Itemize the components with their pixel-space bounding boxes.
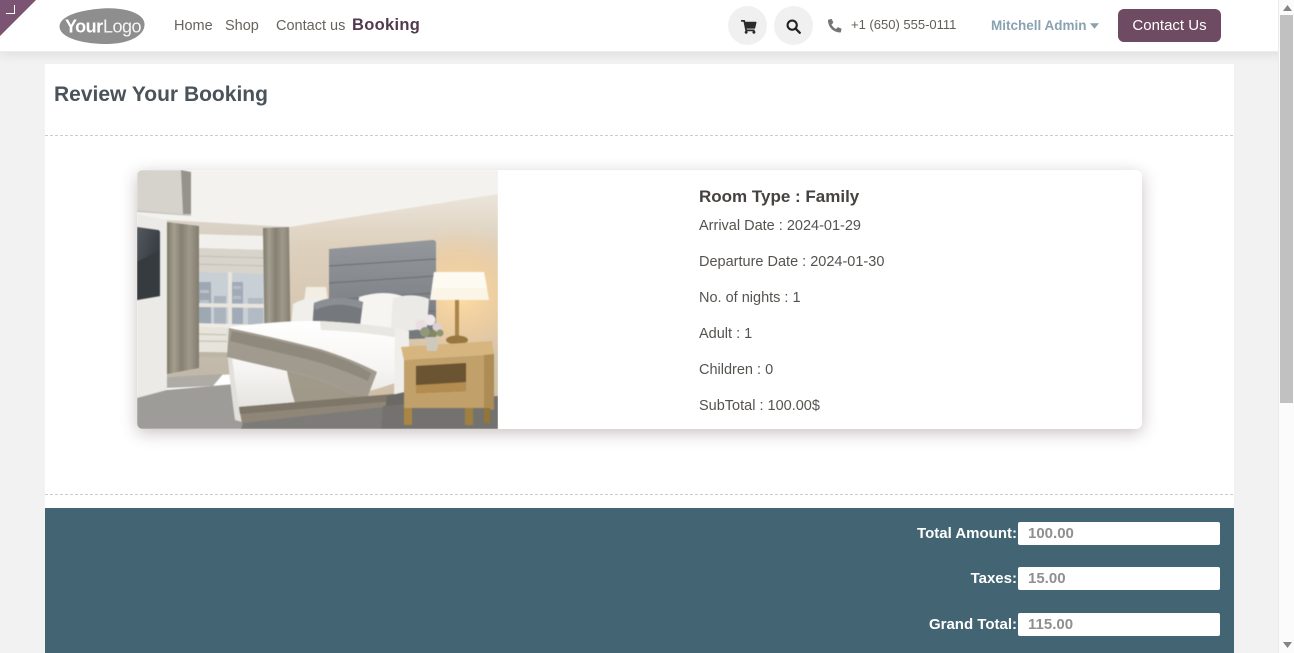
- svg-text:Logo: Logo: [103, 17, 142, 37]
- svg-text:Your: Your: [65, 17, 103, 37]
